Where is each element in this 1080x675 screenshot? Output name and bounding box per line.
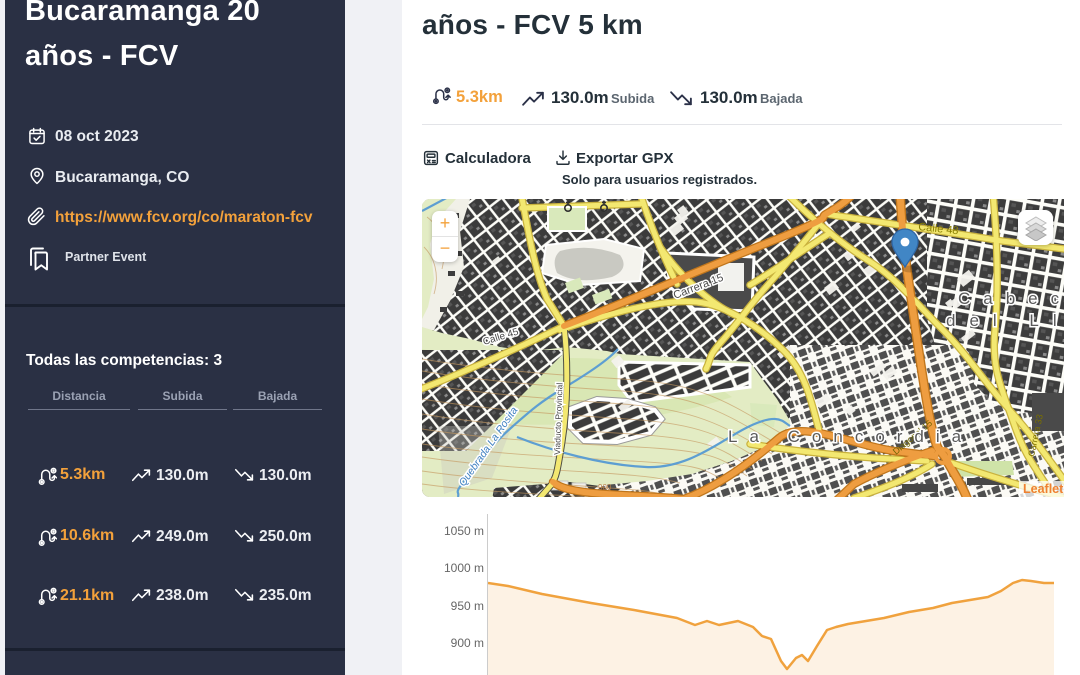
svg-text:del Ll: del Ll xyxy=(946,311,1064,330)
svg-text:900: 900 xyxy=(598,483,612,492)
svg-text:Cabec: Cabec xyxy=(958,289,1064,308)
svg-text:La Concordia: La Concordia xyxy=(728,427,973,446)
